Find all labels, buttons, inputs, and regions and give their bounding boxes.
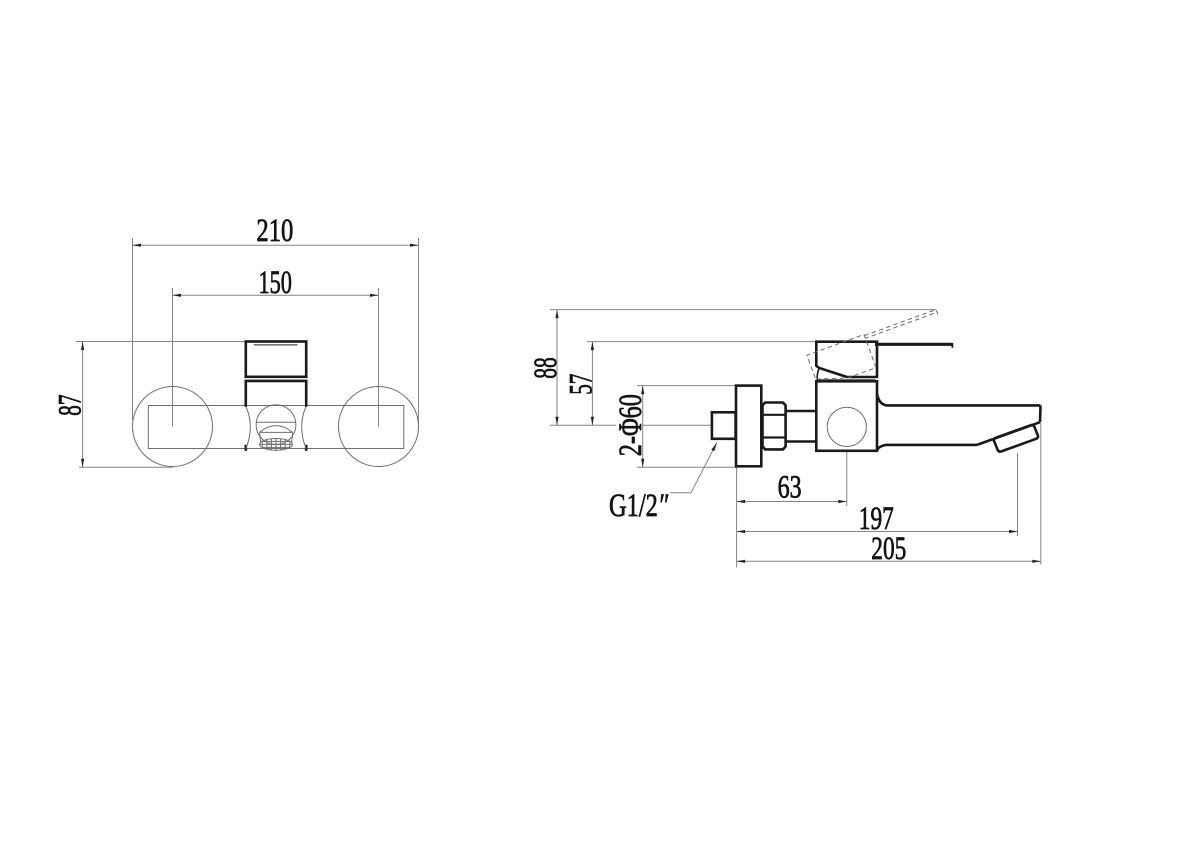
svg-text:G1/2″: G1/2″ — [609, 488, 669, 524]
svg-text:57: 57 — [564, 374, 600, 395]
svg-text:2-Φ60: 2-Φ60 — [613, 394, 649, 456]
svg-text:88: 88 — [528, 357, 564, 379]
svg-text:63: 63 — [778, 470, 802, 506]
svg-text:210: 210 — [256, 213, 293, 249]
